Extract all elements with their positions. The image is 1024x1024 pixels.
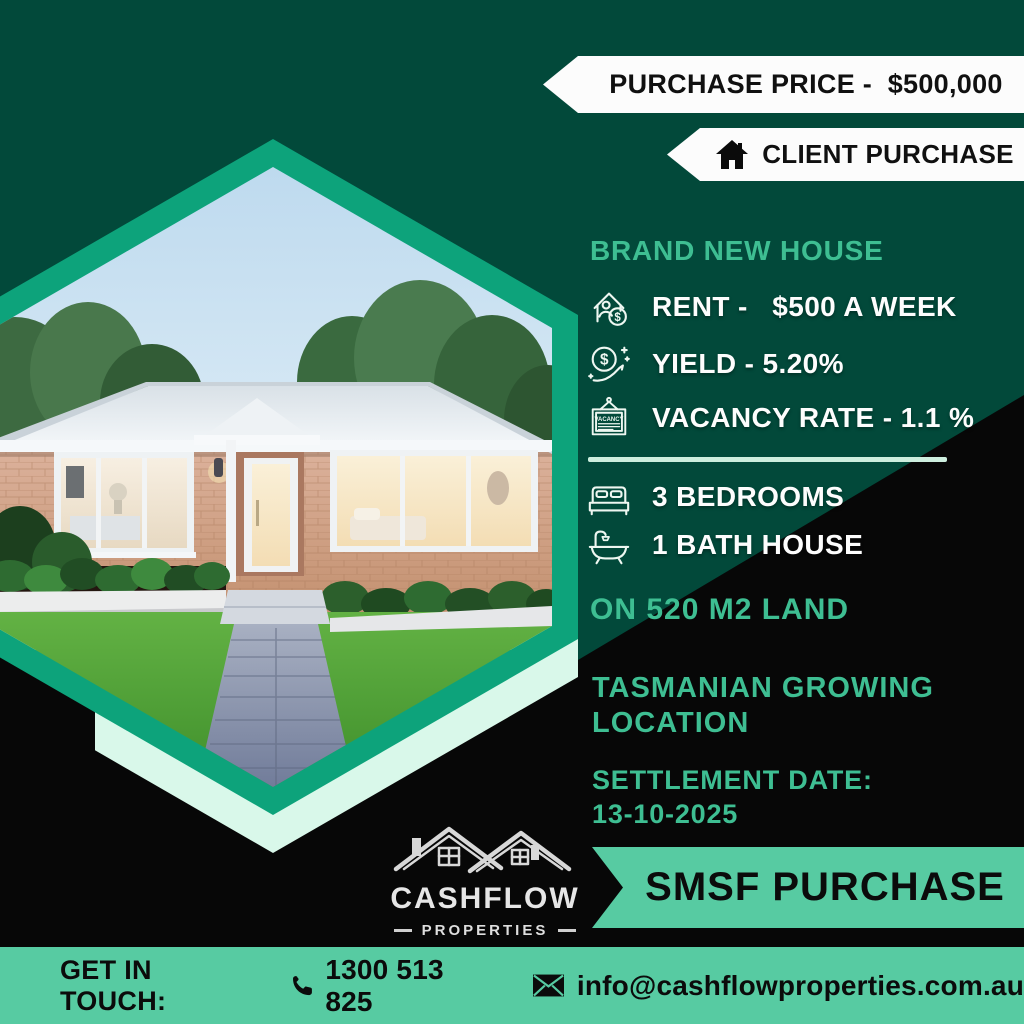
bed-icon xyxy=(586,474,632,520)
smsf-purchase-banner: SMSF PURCHASE xyxy=(592,847,1024,928)
right-window xyxy=(330,450,538,552)
bedrooms-row: 3 BEDROOMS xyxy=(586,474,844,520)
yield-row: $ YIELD - 5.20% xyxy=(586,341,844,387)
client-purchase-label: CLIENT PURCHASE xyxy=(762,139,1014,170)
logo-dash-left xyxy=(394,929,412,932)
settlement-date-value: 13-10-2025 xyxy=(592,797,873,831)
entry-door xyxy=(226,440,304,582)
rent-value: RENT - $500 A WEEK xyxy=(652,291,957,323)
svg-text:$: $ xyxy=(600,351,609,368)
svg-text:$: $ xyxy=(614,312,621,324)
logo-dash-right xyxy=(558,929,576,932)
logo-subtitle-row: PROPERTIES xyxy=(390,922,580,939)
smsf-purchase-label: SMSF PURCHASE xyxy=(645,865,1005,910)
rent-row: $ RENT - $500 A WEEK xyxy=(586,284,957,330)
settlement-date-label: SETTLEMENT DATE: xyxy=(592,763,873,797)
contact-footer: GET IN TOUCH: 1300 513 825 info@cashflow… xyxy=(0,947,1024,1024)
logo-subtitle: PROPERTIES xyxy=(422,922,549,939)
vacancy-sign-icon: VACANCY xyxy=(586,395,632,441)
phone-group: 1300 513 825 xyxy=(290,954,487,1018)
bathrooms-row: 1 BATH HOUSE xyxy=(586,522,863,568)
yield-value: YIELD - 5.20% xyxy=(652,348,844,380)
yield-coin-growth-icon: $ xyxy=(586,341,632,387)
vacancy-sign-text: VACANCY xyxy=(595,417,624,423)
vacancy-rate-value: VACANCY RATE - 1.1 % xyxy=(652,402,974,434)
purchase-price-label: PURCHASE PRICE - $500,000 xyxy=(609,69,1002,100)
settlement-block: SETTLEMENT DATE: 13-10-2025 xyxy=(592,763,873,831)
client-purchase-banner: CLIENT PURCHASE xyxy=(654,128,1024,181)
phone-icon xyxy=(290,973,314,999)
flyer-canvas: PURCHASE PRICE - $500,000 CLIENT PURCHAS… xyxy=(0,0,1024,1024)
logo-houses-spacer xyxy=(390,818,580,880)
vacancy-row: VACANCY VACANCY RATE - 1.1 % xyxy=(586,395,974,441)
email-group: info@cashflowproperties.com.au xyxy=(533,970,1024,1002)
bathrooms-value: 1 BATH HOUSE xyxy=(652,529,863,561)
get-in-touch-label: GET IN TOUCH: xyxy=(60,955,252,1017)
bathtub-icon xyxy=(586,522,632,568)
phone-number[interactable]: 1300 513 825 xyxy=(325,954,486,1018)
bedrooms-value: 3 BEDROOMS xyxy=(652,481,844,513)
purchase-price-banner: PURCHASE PRICE - $500,000 xyxy=(530,56,1024,113)
house-icon xyxy=(716,140,748,170)
section-divider xyxy=(588,457,947,462)
land-size-text: ON 520 M2 LAND xyxy=(590,593,849,627)
email-address[interactable]: info@cashflowproperties.com.au xyxy=(577,970,1024,1002)
logo-company-name: CASHFLOW xyxy=(390,882,580,916)
headline-brand-new-house: BRAND NEW HOUSE xyxy=(590,235,884,267)
envelope-icon xyxy=(533,974,564,997)
location-text: TASMANIAN GROWING LOCATION xyxy=(592,671,937,741)
rent-house-dollar-icon: $ xyxy=(586,284,632,330)
company-logo: CASHFLOW PROPERTIES YOUR RETIREMENT PATH… xyxy=(390,818,580,968)
